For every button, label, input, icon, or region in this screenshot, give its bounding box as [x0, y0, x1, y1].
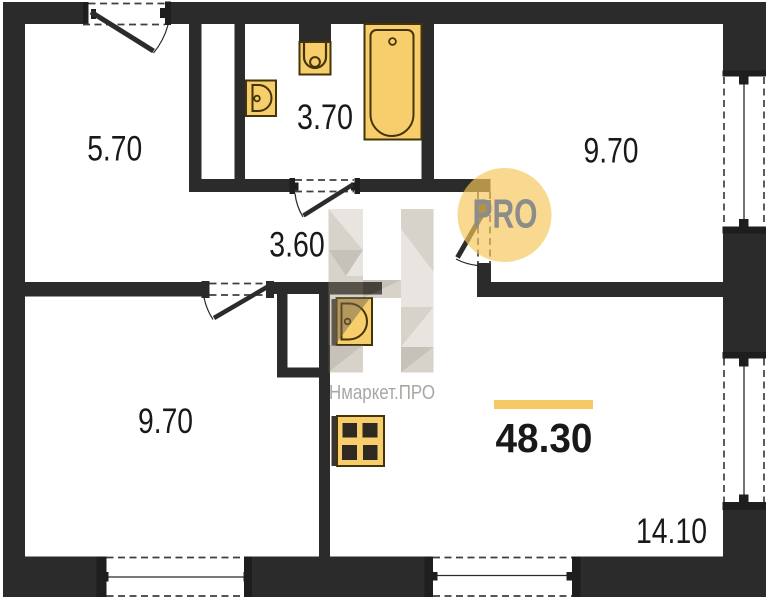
svg-text:14.10: 14.10: [636, 511, 707, 551]
svg-text:5.70: 5.70: [87, 129, 142, 169]
svg-text:9.70: 9.70: [584, 131, 639, 171]
svg-text:3.60: 3.60: [269, 225, 325, 265]
svg-text:3.70: 3.70: [297, 97, 353, 137]
svg-text:9.70: 9.70: [138, 401, 193, 441]
svg-text:48.30: 48.30: [496, 415, 593, 461]
svg-text:PRO: PRO: [473, 191, 538, 237]
svg-text:Нмаркет.ПРО: Нмаркет.ПРО: [329, 382, 435, 404]
